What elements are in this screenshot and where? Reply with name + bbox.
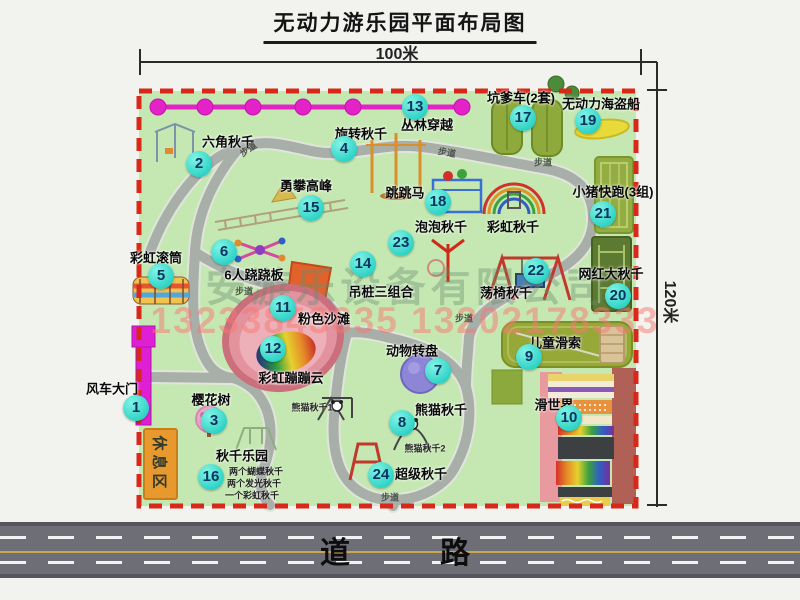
swing-park-note-2: 一个彩虹秋千 [225, 489, 279, 502]
height-dimension-label: 120米 [660, 281, 684, 324]
watermark-phone: 13233843635 13202178333 [151, 300, 660, 342]
page-title: 无动力游乐园平面布局图 [264, 7, 537, 44]
poi-label-18: 跳跳马 [385, 183, 424, 202]
poi-badge-1: 1 [123, 395, 149, 421]
poi-label-21: 小猪快跑(3组) [573, 182, 654, 201]
poi-badge-7: 7 [425, 358, 451, 384]
poi-badge-14: 14 [350, 251, 376, 277]
walk-path-label-3: 步道 [235, 285, 253, 298]
poi-badge-19: 19 [575, 108, 601, 134]
poi-badge-22: 22 [523, 258, 549, 284]
poi-label-3: 樱花树 [191, 390, 230, 409]
poi-badge-11: 11 [270, 295, 296, 321]
poi-badge-10: 10 [556, 405, 582, 431]
poi-badge-3: 3 [201, 408, 227, 434]
poi-badge-15: 15 [298, 195, 324, 221]
walk-path-label-4: 步道 [455, 312, 473, 325]
poi-label-19: 无动力海盗船 [562, 94, 640, 113]
poi-badge-20: 20 [605, 283, 631, 309]
poi-badge-2: 2 [186, 151, 212, 177]
poi-label-11: 粉色沙滩 [298, 309, 350, 328]
poi-label-17: 坑爹车(2套) [487, 88, 555, 107]
panda-note-0: 熊猫秋千1 [291, 401, 332, 414]
poi-badge-9: 9 [516, 344, 542, 370]
poi-badge-16: 16 [198, 464, 224, 490]
width-dimension-label: 100米 [376, 40, 419, 64]
poi-badge-12: 12 [260, 336, 286, 362]
poi-badge-21: 21 [590, 201, 616, 227]
road-label: 道 路 [320, 528, 480, 572]
poi-label-20: 网红大秋千 [578, 264, 643, 283]
poi-badge-8: 8 [389, 410, 415, 436]
poi-badge-6: 6 [211, 239, 237, 265]
poi-label-12: 彩虹蹦蹦云 [258, 368, 323, 387]
walk-path-label-5: 步道 [381, 491, 399, 504]
poi-badge-17: 17 [510, 105, 536, 131]
poi-label-24: 超级秋千 [395, 464, 447, 483]
poi-badge-5: 5 [148, 263, 174, 289]
poi-label-7: 动物转盘 [386, 341, 438, 360]
poi-label-1: 风车大门 [86, 379, 138, 398]
poi-badge-18: 18 [425, 189, 451, 215]
poi-label-22: 荡椅秋千 [480, 283, 532, 302]
walk-path-label-2: 步道 [534, 156, 552, 169]
poi-label-23: 泡泡秋千 [415, 217, 467, 236]
poi-label-8: 熊猫秋千 [415, 400, 467, 419]
poi-badge-4: 4 [331, 136, 357, 162]
poi-label-16: 秋千乐园 [216, 446, 268, 465]
rest-area-label: 休息区 [150, 435, 171, 492]
poi-badge-24: 24 [368, 462, 394, 488]
poi-label-6: 6人跷跷板 [224, 265, 283, 284]
playground-plan-page: 安游乐设备有限公司 13233843635 13202178333 无动力游乐园… [0, 0, 800, 600]
poi-badge-23: 23 [388, 230, 414, 256]
poi-label-15: 勇攀高峰 [280, 176, 332, 195]
poi-label-14: 吊桩三组合 [348, 282, 413, 301]
panda-note-1: 熊猫秋千2 [404, 442, 445, 455]
rainbow-swing-label: 彩虹秋千 [487, 217, 539, 236]
road-band: 道 路 [0, 522, 800, 578]
poi-badge-13: 13 [402, 94, 428, 120]
